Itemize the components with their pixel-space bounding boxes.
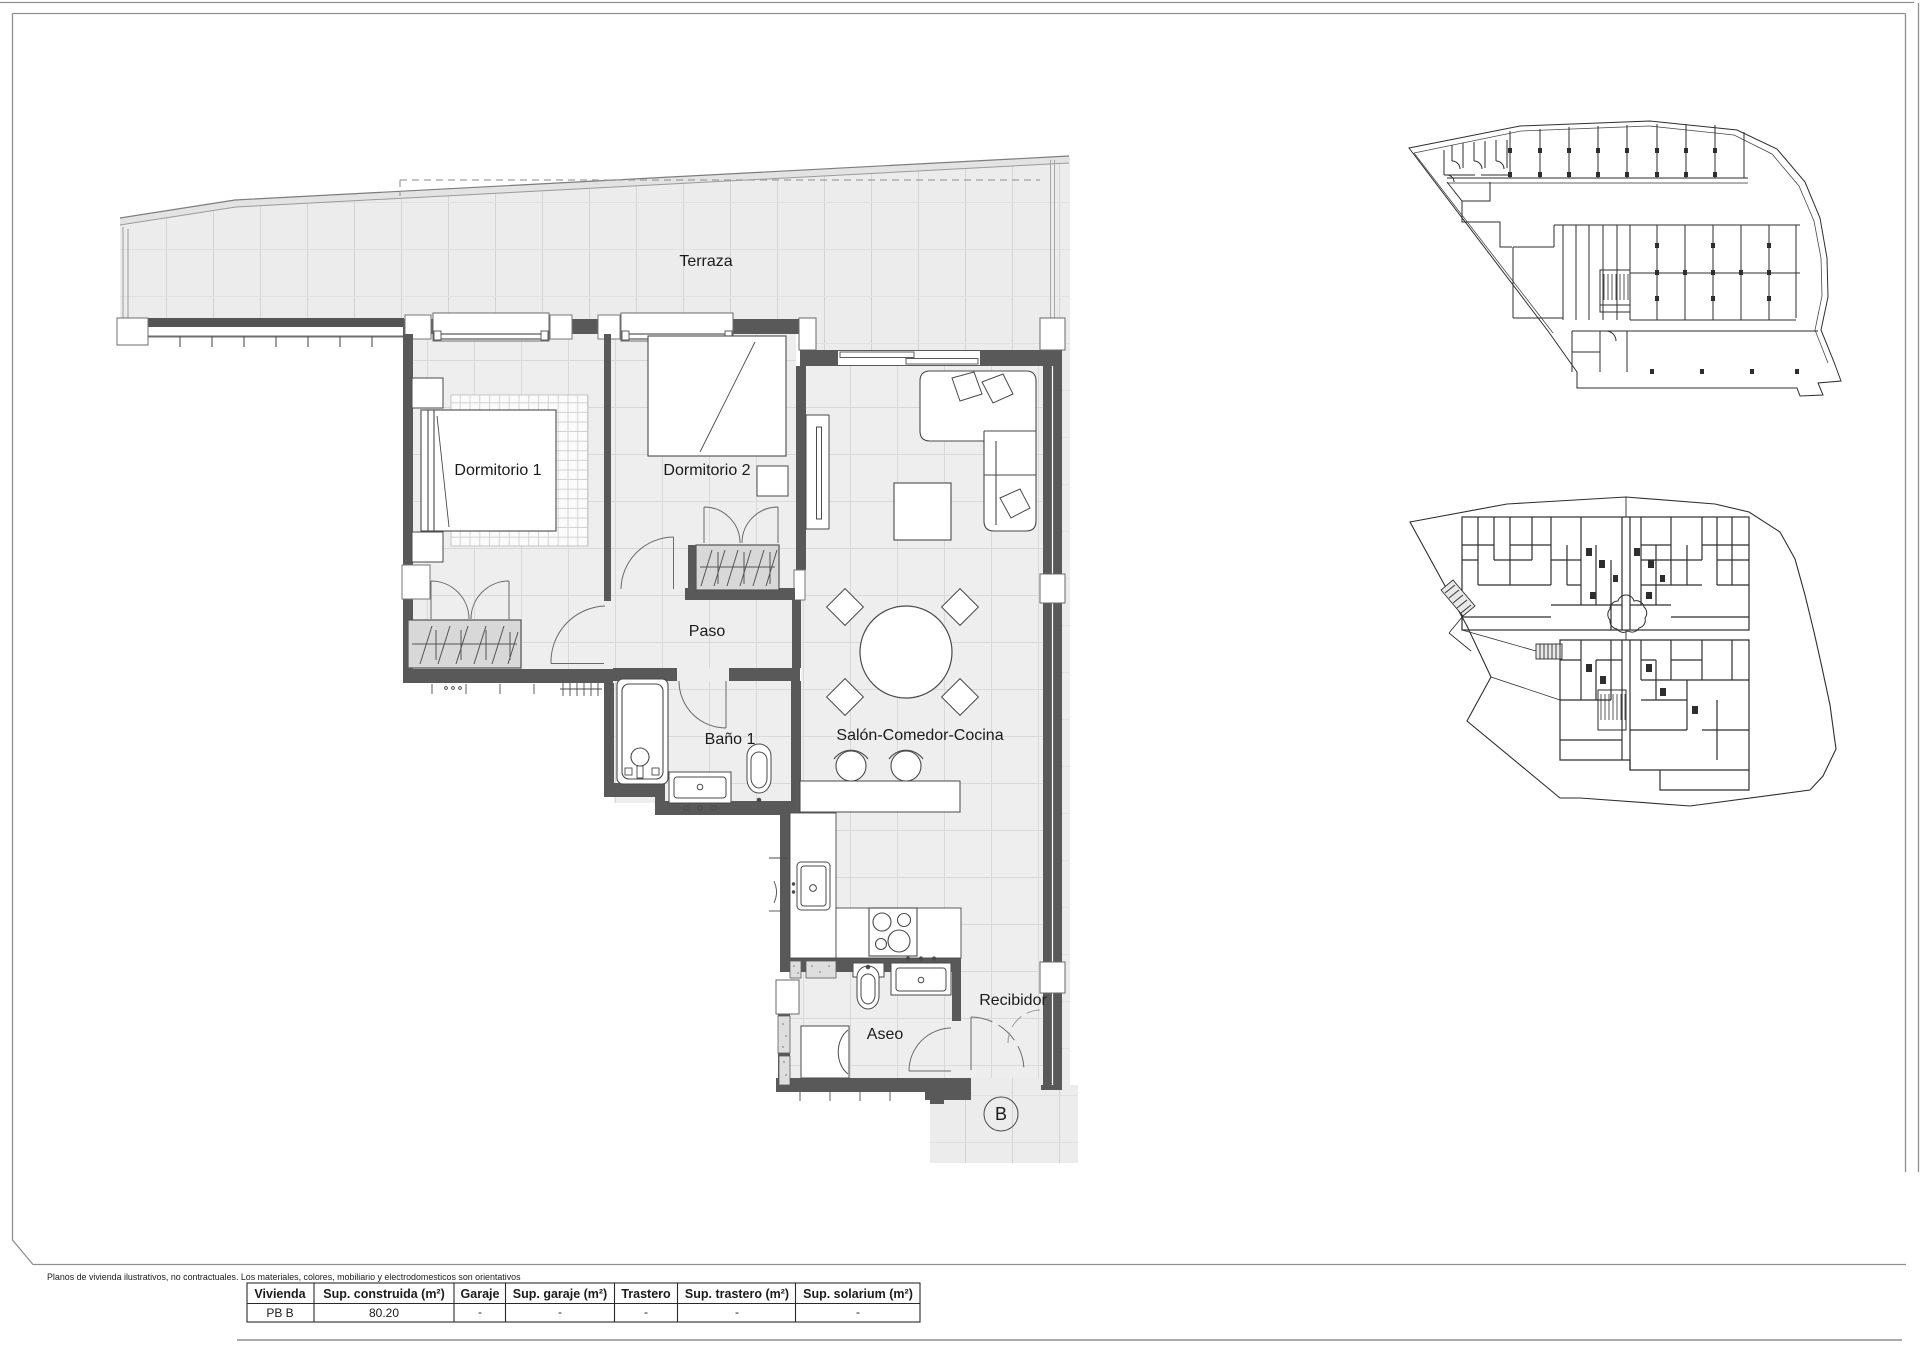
svg-text:Salón-Comedor-Cocina: Salón-Comedor-Cocina [836, 727, 1003, 744]
svg-text:Sup. trastero (m²): Sup. trastero (m²) [685, 1287, 789, 1301]
svg-text:Aseo: Aseo [867, 1026, 904, 1043]
svg-text:Dormitorio 2: Dormitorio 2 [663, 462, 750, 479]
svg-text:B: B [995, 1104, 1007, 1124]
svg-text:Recibidor: Recibidor [979, 992, 1047, 1009]
svg-text:-: - [856, 1305, 860, 1319]
svg-text:-: - [478, 1305, 482, 1319]
svg-text:-: - [558, 1305, 562, 1319]
svg-text:Planos de vivienda ilustrativo: Planos de vivienda ilustrativos, no cont… [47, 1272, 521, 1282]
svg-text:-: - [644, 1305, 648, 1319]
svg-text:80.20: 80.20 [369, 1306, 399, 1320]
svg-text:Sup. construida (m²): Sup. construida (m²) [323, 1287, 445, 1301]
svg-text:Trastero: Trastero [621, 1287, 671, 1301]
svg-text:Sup. garaje (m²): Sup. garaje (m²) [513, 1287, 607, 1301]
svg-text:Vivienda: Vivienda [254, 1287, 306, 1301]
svg-text:Sup. solarium (m²): Sup. solarium (m²) [803, 1287, 913, 1301]
svg-text:Dormitorio 1: Dormitorio 1 [454, 462, 541, 479]
svg-text:Garaje: Garaje [461, 1287, 500, 1301]
svg-text:PB B: PB B [266, 1306, 293, 1320]
svg-text:Paso: Paso [689, 623, 726, 640]
svg-text:Baño 1: Baño 1 [705, 731, 756, 748]
svg-text:-: - [735, 1305, 739, 1319]
svg-text:Terraza: Terraza [679, 253, 732, 270]
